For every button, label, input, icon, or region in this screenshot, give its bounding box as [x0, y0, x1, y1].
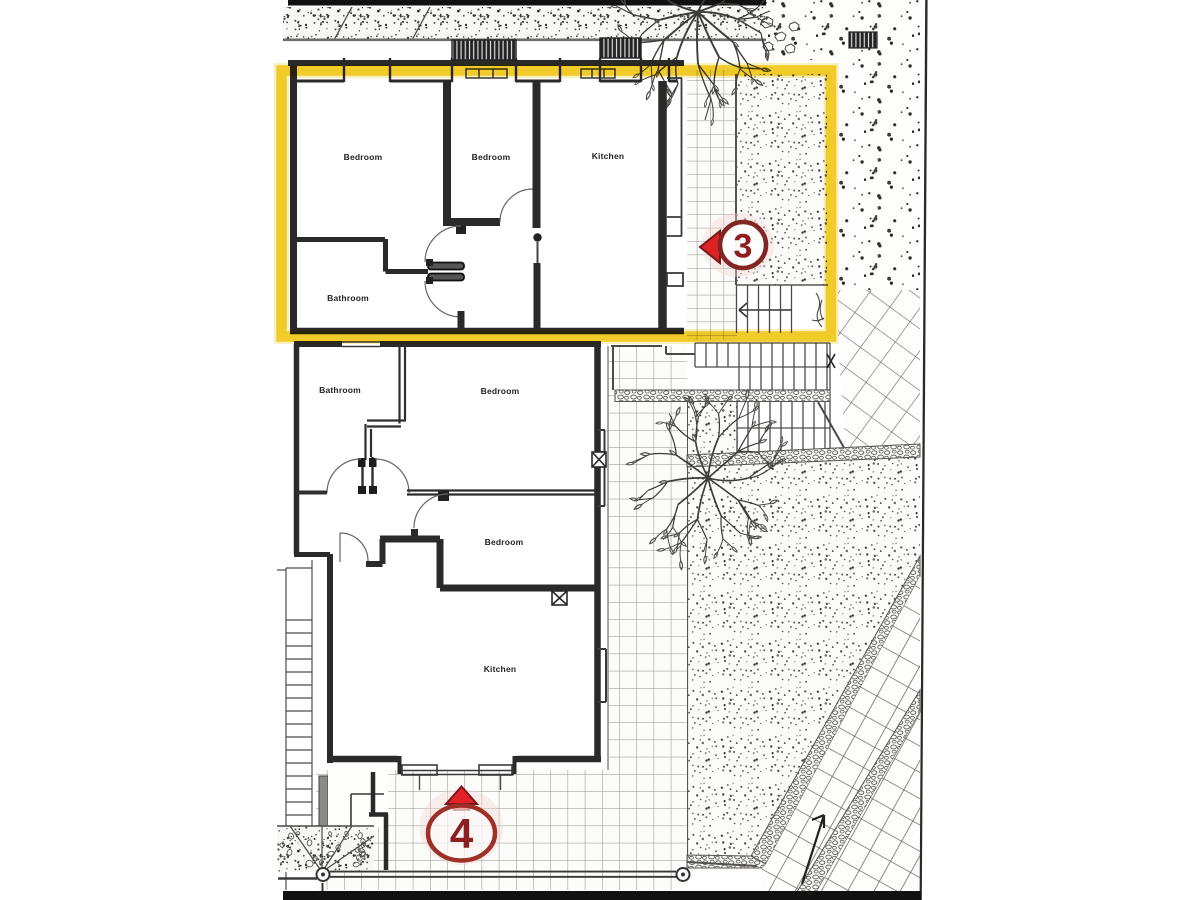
svg-text:Bedroom: Bedroom	[481, 386, 520, 396]
svg-text:Kitchen: Kitchen	[484, 664, 517, 674]
svg-text:3: 3	[734, 228, 753, 266]
svg-text:4: 4	[450, 810, 474, 857]
svg-text:Bedroom: Bedroom	[344, 152, 383, 162]
svg-text:Bedroom: Bedroom	[485, 537, 524, 547]
svg-text:Kitchen: Kitchen	[592, 151, 625, 161]
svg-text:Bathroom: Bathroom	[327, 293, 369, 303]
svg-text:Bathroom: Bathroom	[319, 385, 361, 395]
svg-text:Bedroom: Bedroom	[472, 152, 511, 162]
